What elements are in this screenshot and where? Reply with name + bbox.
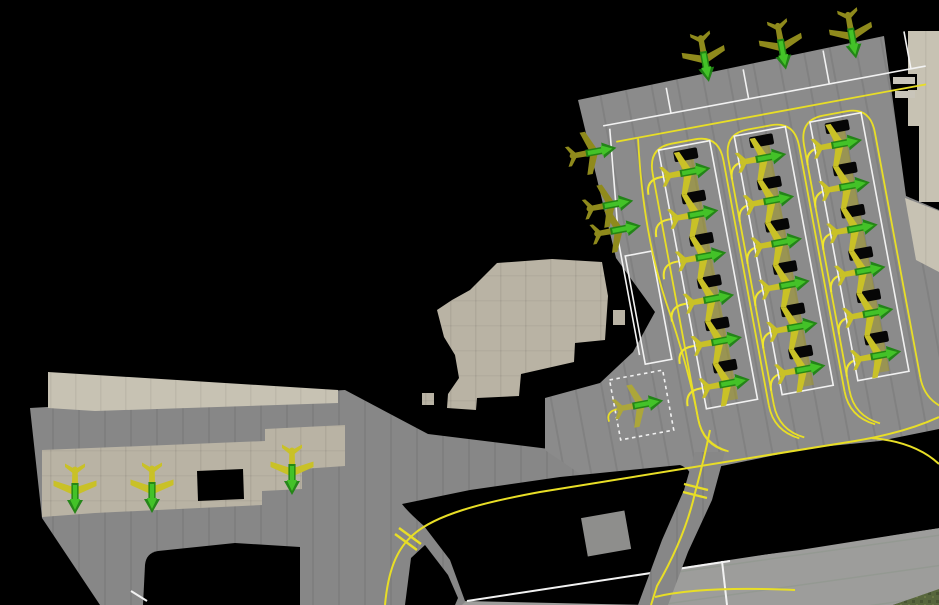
apron-map-canvas: [0, 0, 939, 605]
island-pad: [581, 510, 631, 556]
airport-apron-view: [0, 0, 939, 605]
small-building: [613, 310, 625, 325]
small-building: [422, 393, 434, 405]
old-apron-notch: [197, 469, 244, 501]
central-building: [437, 259, 608, 410]
